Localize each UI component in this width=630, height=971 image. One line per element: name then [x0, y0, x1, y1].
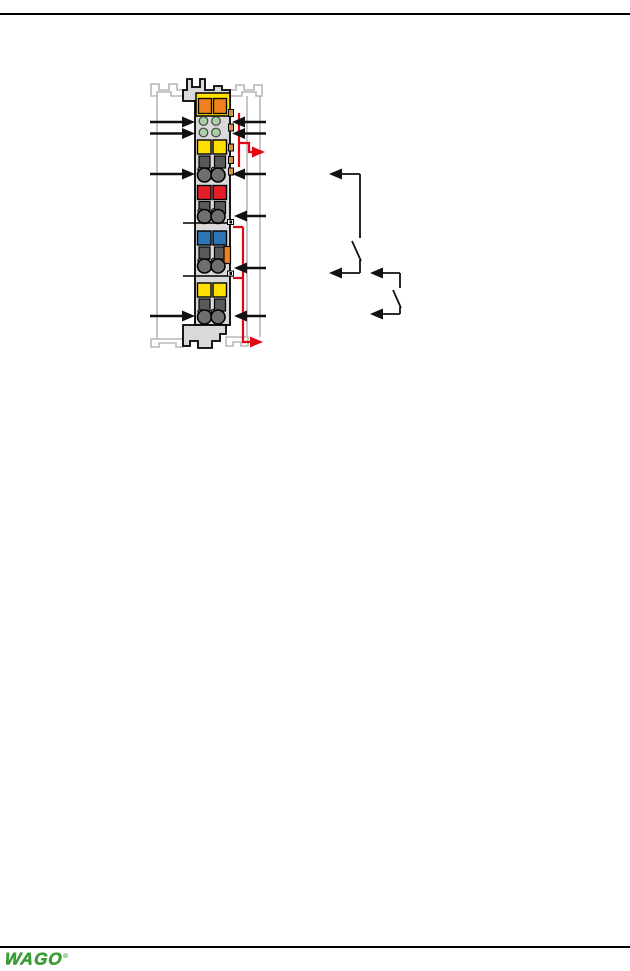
side-tab — [229, 168, 234, 175]
side-tab — [229, 144, 234, 151]
terminal-yellow — [198, 283, 212, 297]
cage-clamp — [198, 168, 212, 182]
cage-clamp — [211, 210, 225, 224]
side-latch-orange — [224, 247, 231, 264]
terminal-blue — [198, 231, 212, 245]
registered-trademark-symbol: ® — [63, 953, 69, 960]
side-tab — [229, 124, 234, 131]
led-indicator — [212, 128, 221, 137]
side-tab — [229, 157, 234, 164]
switch2-blade — [393, 290, 401, 308]
clamp-slot — [199, 247, 210, 259]
terminal-yellow — [213, 140, 227, 154]
switch-contact-1 — [341, 174, 361, 273]
side-tab — [229, 110, 234, 117]
switch1-blade — [352, 241, 361, 261]
latch-right — [214, 99, 227, 114]
switch-contact-2 — [382, 273, 401, 314]
module-foot — [183, 325, 226, 348]
cage-clamp — [198, 310, 212, 324]
led-indicator — [212, 117, 221, 126]
wiring-diagram — [0, 0, 630, 971]
cage-clamp — [198, 259, 212, 273]
din-rail-top-left — [151, 84, 183, 96]
jumper-contact-mark-inner — [230, 221, 233, 224]
terminal-yellow — [198, 140, 212, 154]
cage-clamp — [211, 259, 225, 273]
wago-logo: WAGO® — [4, 947, 69, 967]
terminal-yellow — [213, 283, 227, 297]
switch-contacts — [341, 174, 401, 314]
jumper-step-arrow-top — [239, 143, 253, 152]
din-rail-top-right — [230, 85, 262, 96]
cage-clamp — [211, 168, 225, 182]
cage-clamp — [198, 210, 212, 224]
cage-clamp — [211, 310, 225, 324]
page-footer-rule — [0, 946, 630, 948]
jumper-contact-mark-inner — [230, 272, 233, 275]
clamp-slot — [199, 156, 210, 168]
wago-logo-text: WAGO — [4, 950, 64, 969]
terminal-blue — [213, 231, 227, 245]
terminal-red — [198, 186, 212, 200]
clamp-slot — [215, 299, 226, 311]
latch-left — [199, 99, 212, 114]
power-jumper-arrows — [233, 113, 253, 342]
terminal-red — [213, 186, 227, 200]
io-module — [183, 79, 234, 348]
led-indicator — [199, 128, 208, 137]
clamp-slot — [215, 156, 226, 168]
din-rail-bottom-left — [151, 339, 183, 347]
led-indicator — [199, 117, 208, 126]
